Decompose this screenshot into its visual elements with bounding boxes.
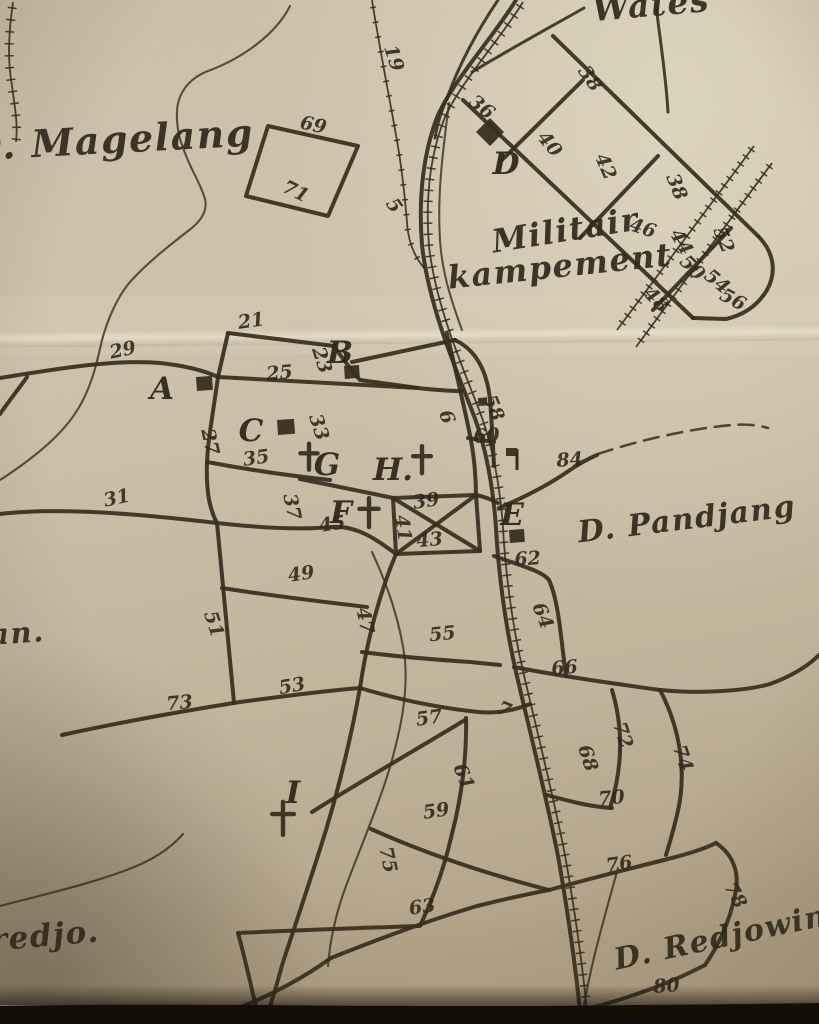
paper-grain bbox=[0, 0, 819, 1024]
town-map: D. MagelangWatesMilitairkampementD. Pand… bbox=[0, 0, 819, 1024]
map-photo: D. MagelangWatesMilitairkampementD. Pand… bbox=[0, 0, 819, 1024]
photo-edge-shadow bbox=[0, 985, 819, 1005]
photo-edge bbox=[0, 1003, 819, 1024]
